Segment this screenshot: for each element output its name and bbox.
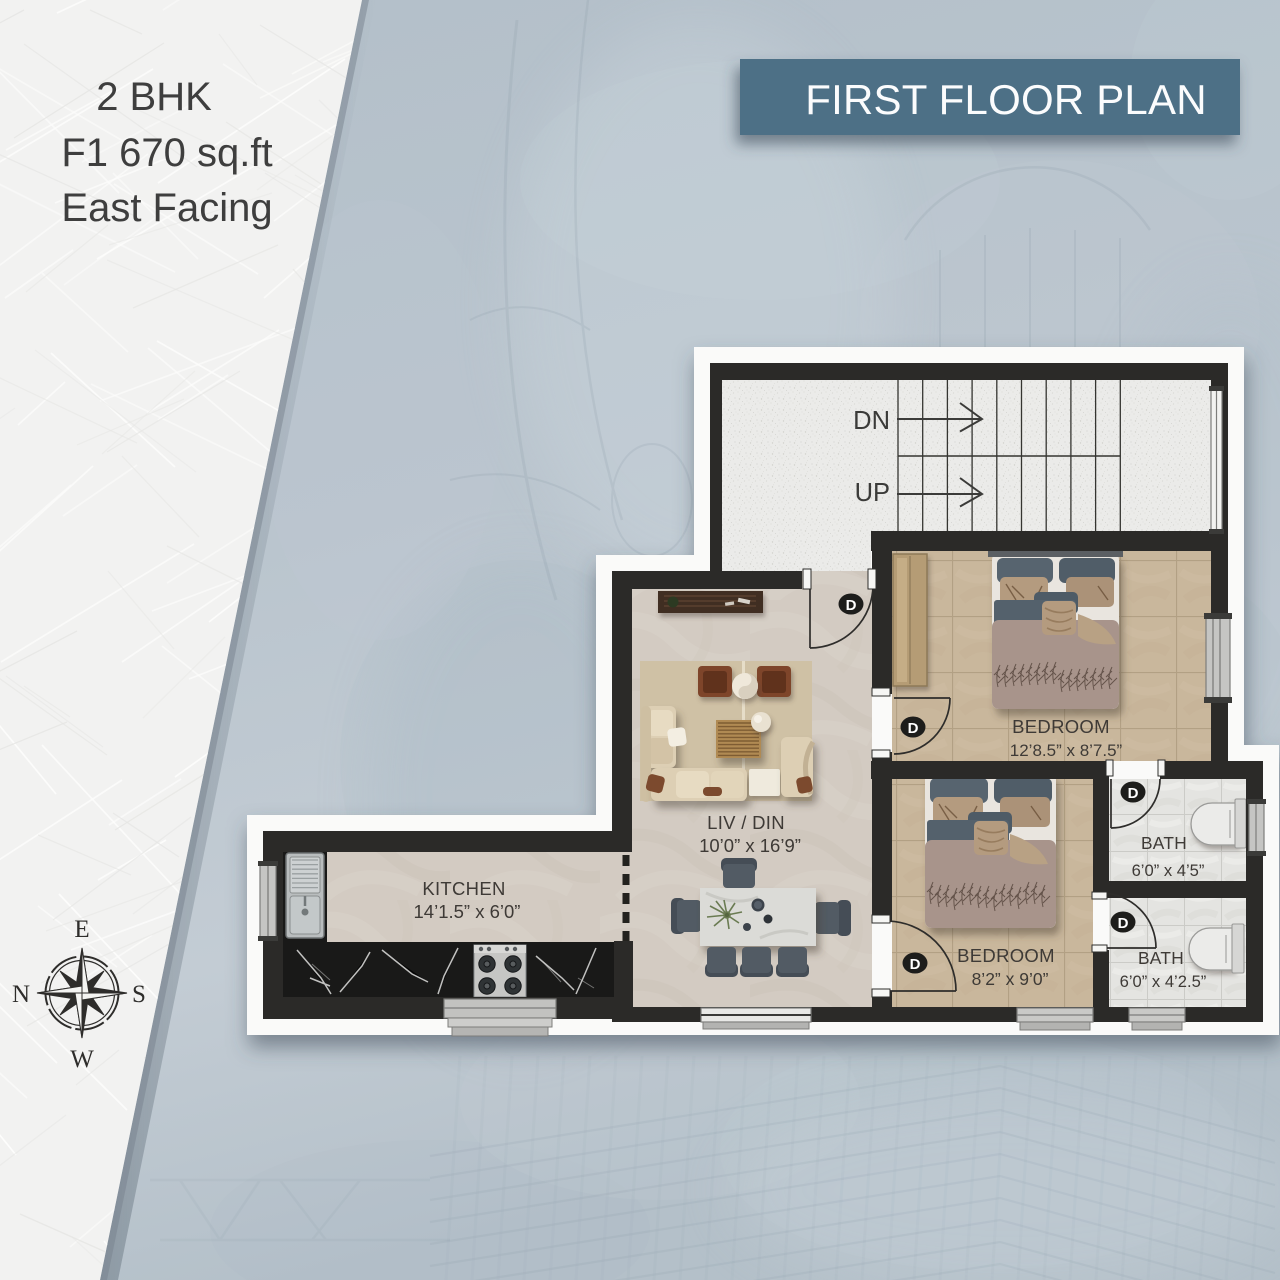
svg-text:N: N	[12, 981, 30, 1008]
svg-text:8’2” x 9’0”: 8’2” x 9’0”	[972, 969, 1049, 989]
svg-text:D: D	[908, 720, 919, 737]
svg-text:BEDROOM: BEDROOM	[957, 945, 1055, 966]
svg-text:10’0” x 16’9”: 10’0” x 16’9”	[699, 835, 801, 856]
svg-text:DN: DN	[853, 407, 890, 435]
svg-text:14’1.5” x 6’0”: 14’1.5” x 6’0”	[414, 901, 521, 922]
svg-text:D: D	[1118, 915, 1129, 932]
svg-text:S: S	[132, 981, 146, 1008]
svg-text:BATH: BATH	[1141, 833, 1187, 853]
svg-text:E: E	[74, 916, 89, 943]
svg-text:D: D	[846, 597, 857, 614]
svg-text:BEDROOM: BEDROOM	[1012, 716, 1110, 737]
svg-text:W: W	[70, 1046, 94, 1073]
svg-text:6’0” x 4’5”: 6’0” x 4’5”	[1132, 861, 1205, 880]
svg-text:East Facing: East Facing	[61, 186, 272, 230]
svg-text:12’8.5” x 8’7.5”: 12’8.5” x 8’7.5”	[1010, 741, 1123, 760]
svg-text:6’0” x 4’2.5”: 6’0” x 4’2.5”	[1120, 972, 1207, 991]
svg-text:LIV / DIN: LIV / DIN	[707, 812, 785, 833]
svg-text:FIRST FLOOR PLAN: FIRST FLOOR PLAN	[805, 76, 1207, 123]
svg-text:D: D	[1128, 785, 1139, 802]
svg-text:F1 670 sq.ft: F1 670 sq.ft	[61, 131, 272, 175]
svg-text:2 BHK: 2 BHK	[96, 75, 212, 119]
svg-text:D: D	[910, 956, 921, 973]
svg-text:BATH: BATH	[1138, 948, 1184, 968]
svg-text:UP: UP	[855, 479, 890, 507]
svg-text:KITCHEN: KITCHEN	[422, 878, 505, 899]
